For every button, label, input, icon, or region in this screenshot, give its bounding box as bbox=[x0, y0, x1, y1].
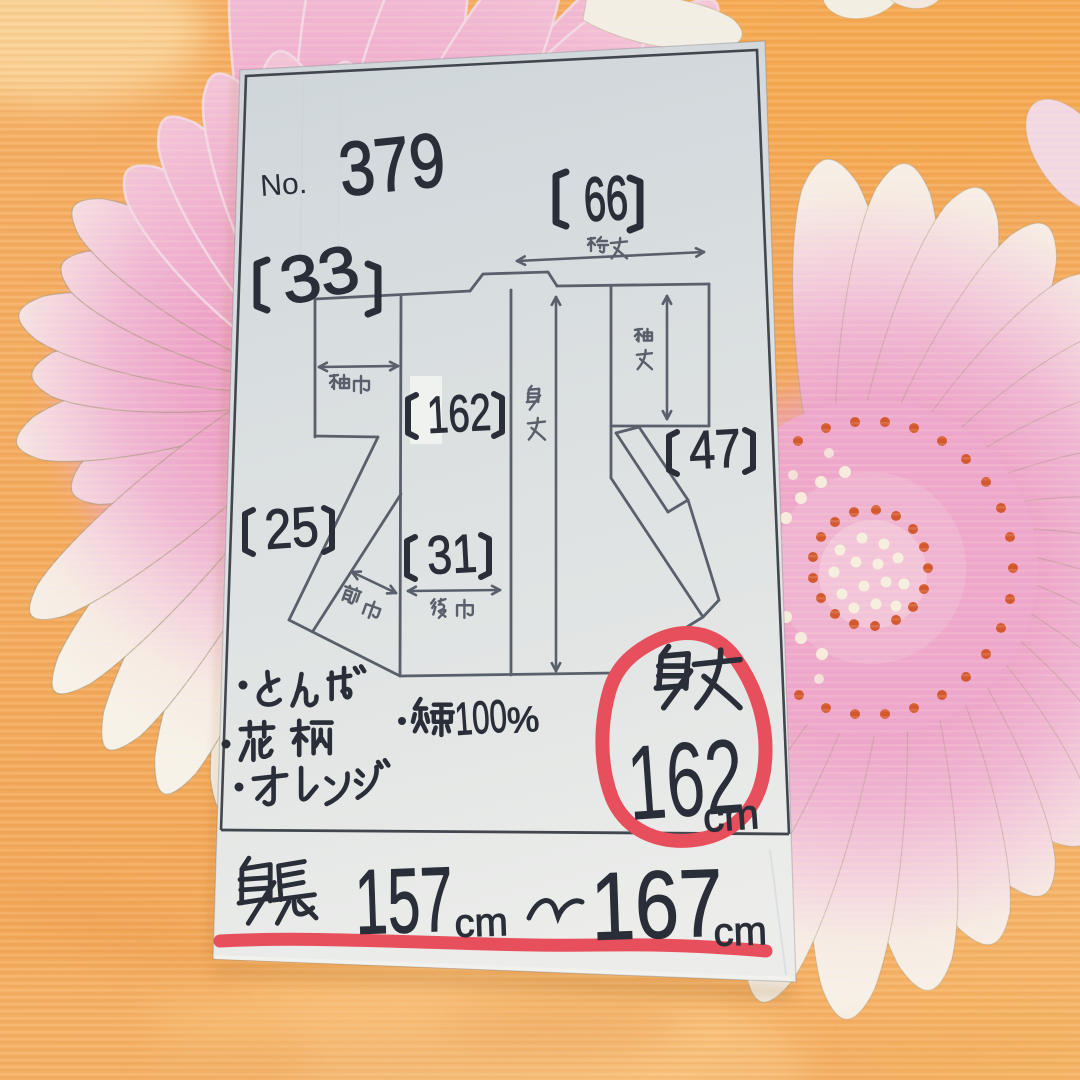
svg-text:cm: cm bbox=[454, 900, 509, 946]
svg-text:379: 379 bbox=[335, 117, 449, 213]
svg-text:31: 31 bbox=[425, 523, 478, 586]
svg-text:66: 66 bbox=[582, 164, 630, 235]
svg-text:167: 167 bbox=[589, 849, 725, 961]
svg-text:157: 157 bbox=[353, 849, 455, 954]
svg-text:162: 162 bbox=[426, 384, 493, 445]
svg-text:No.: No. bbox=[259, 167, 308, 203]
svg-text:cm: cm bbox=[713, 909, 768, 955]
svg-text:100: 100 bbox=[453, 689, 509, 745]
svg-text:25: 25 bbox=[262, 494, 320, 561]
svg-text:%: % bbox=[506, 698, 541, 741]
svg-text:cm: cm bbox=[701, 790, 760, 841]
svg-text:47: 47 bbox=[687, 418, 742, 481]
